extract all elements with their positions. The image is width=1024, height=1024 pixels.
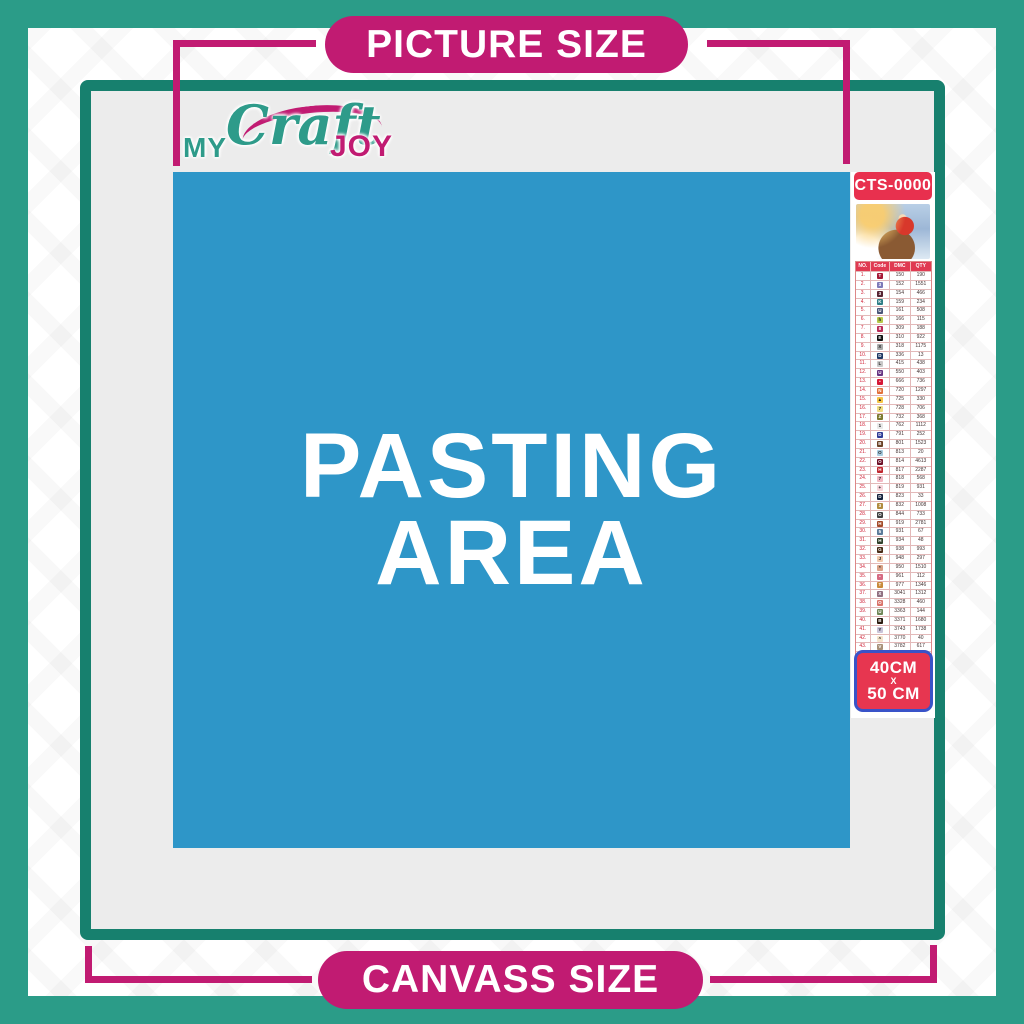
color-table-header: NO. Code DMC QTY [856,262,931,271]
table-row: 32.G938993 [856,545,931,554]
table-row: 22.O8144613 [856,457,931,466]
table-row: 41.Y37431738 [856,625,931,634]
table-row: 23.H8172287 [856,466,931,475]
picture-size-bracket-left [173,40,316,166]
table-row: 36.T9771346 [856,581,931,590]
table-row: 14.N7201297 [856,386,931,395]
size-height: 50 CM [867,685,920,703]
header-dmc: DMC [890,262,910,271]
table-row: 16.7728706 [856,404,931,413]
table-row: 9.X3181175 [856,342,931,351]
table-row: 8.E310922 [856,333,931,342]
table-row: 40.B33711680 [856,616,931,625]
design-thumbnail [856,204,930,259]
color-table-body: 1.T1501902.315215513.31544664.K1592345.U… [856,271,931,696]
canvass-size-banner: CANVASS SIZE [318,951,703,1009]
table-row: 10.D33613 [856,351,931,360]
product-graphic: MY Craft JOY PASTING AREA PICTURE SIZE C… [0,0,1024,1024]
table-row: 31.H93448 [856,536,931,545]
table-row: 20.B8011523 [856,439,931,448]
table-row: 38.O3328460 [856,598,931,607]
header-code: Code [871,262,890,271]
table-row: 18.17621112 [856,421,931,430]
size-width: 40CM [870,659,917,677]
canvas-size-box: 40CM X 50 CM [854,650,933,712]
table-row: 25.+819931 [856,483,931,492]
table-row: 3.3154466 [856,289,931,298]
table-row: 17.Z732368 [856,413,931,422]
table-row: 24.7818568 [856,474,931,483]
outer-teal-border-right [996,0,1024,1024]
table-row: 26.D82333 [856,492,931,501]
color-legend-table: NO. Code DMC QTY 1.T1501902.315215513.31… [855,261,932,697]
picture-size-banner: PICTURE SIZE [325,16,688,73]
table-row: 4.K159234 [856,298,931,307]
canvass-size-bracket-left [85,946,312,983]
table-row: 13.•666736 [856,377,931,386]
table-row: 37.X30411312 [856,589,931,598]
table-row: 19.D791252 [856,430,931,439]
table-row: 29.H9192781 [856,519,931,528]
table-row: 39.U3363144 [856,607,931,616]
table-row: 12.U550403 [856,368,931,377]
table-row: 15.▲725330 [856,395,931,404]
picture-size-bracket-right [707,40,850,164]
pasting-area-line1: PASTING [300,423,723,510]
table-row: 27.38321008 [856,501,931,510]
table-row: 5.U161508 [856,306,931,315]
table-row: 21.O81320 [856,448,931,457]
table-row: 1.T150190 [856,271,931,280]
color-legend-sidebar: CTS-0000 NO. Code DMC QTY 1.T1501902.315… [851,172,935,718]
table-row: 34.*9501510 [856,563,931,572]
table-row: 11.L415438 [856,359,931,368]
canvass-size-bracket-right [710,945,937,983]
header-qty: QTY [911,262,931,271]
pasting-area-line2: AREA [375,510,648,597]
sku-badge: CTS-0000 [854,172,932,200]
table-row: 6.h166115 [856,315,931,324]
table-row: 2.31521551 [856,280,931,289]
logo-text-joy: JOY [330,130,393,164]
table-row: 35.•961112 [856,572,931,581]
table-row: 42.^377040 [856,634,931,643]
table-row: 33.J948297 [856,554,931,563]
outer-teal-border-left [0,0,28,1024]
header-no: NO. [856,262,871,271]
table-row: 30.593167 [856,527,931,536]
table-row: 7.8309188 [856,324,931,333]
pasting-area: PASTING AREA [173,172,850,848]
table-row: 28.O844733 [856,510,931,519]
